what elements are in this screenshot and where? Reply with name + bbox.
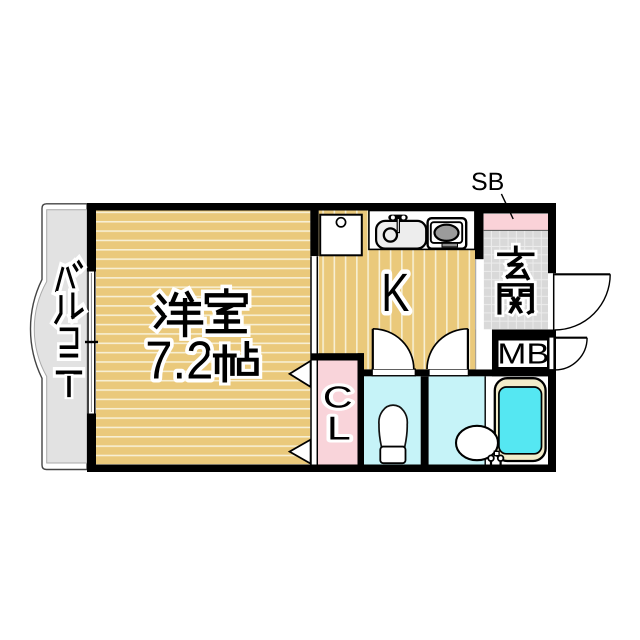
svg-text:MB: MB (497, 339, 549, 371)
svg-text:SB: SB (471, 168, 504, 196)
svg-text:K: K (381, 263, 409, 323)
svg-text:L: L (327, 410, 351, 447)
